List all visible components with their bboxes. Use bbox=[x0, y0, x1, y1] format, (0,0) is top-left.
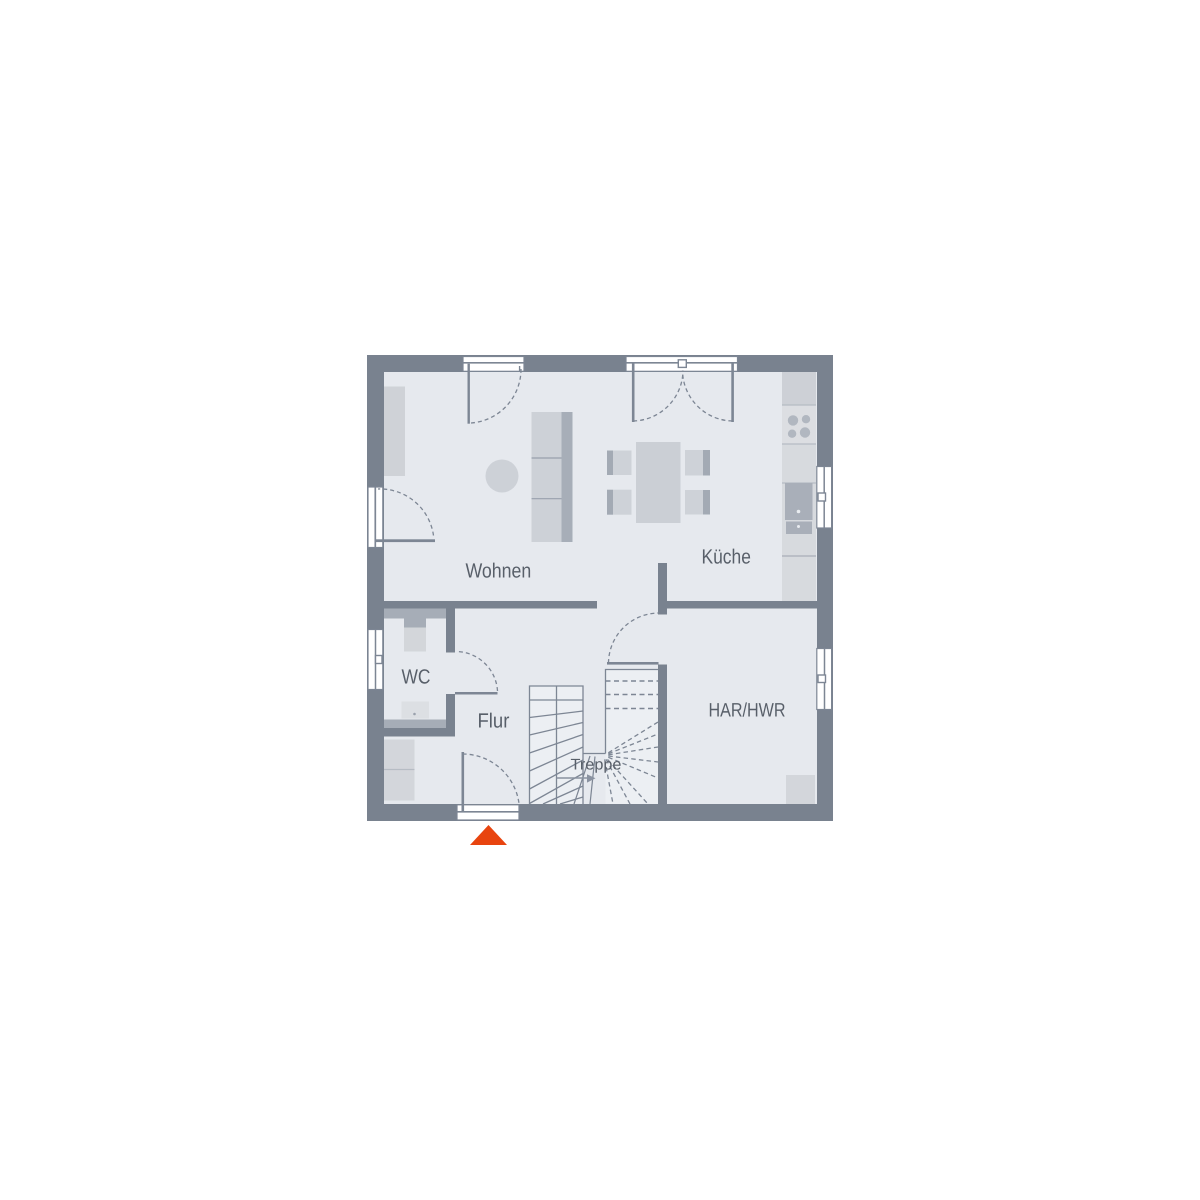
svg-text:Flur: Flur bbox=[478, 710, 510, 733]
svg-text:WC: WC bbox=[402, 666, 431, 689]
svg-text:Wohnen: Wohnen bbox=[466, 560, 532, 583]
svg-text:Küche: Küche bbox=[702, 546, 751, 569]
svg-text:HAR/HWR: HAR/HWR bbox=[709, 700, 786, 722]
svg-text:Treppe: Treppe bbox=[571, 756, 622, 773]
